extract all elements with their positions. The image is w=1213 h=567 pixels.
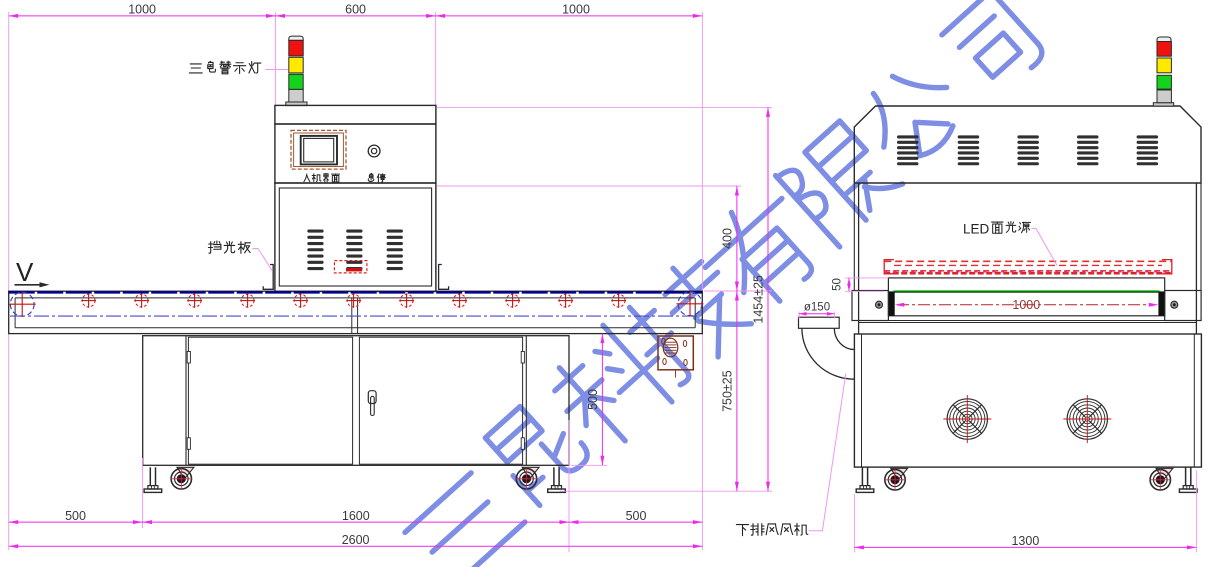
svg-text:1300: 1300: [1011, 534, 1039, 548]
svg-text:400: 400: [720, 228, 734, 249]
svg-text:2600: 2600: [342, 533, 370, 547]
svg-text:50: 50: [832, 278, 844, 291]
svg-text:1454±25: 1454±25: [752, 275, 766, 324]
svg-text:500: 500: [586, 389, 600, 410]
svg-text:1000: 1000: [128, 3, 156, 17]
svg-text:1600: 1600: [342, 509, 370, 523]
svg-text:ø150: ø150: [804, 302, 830, 314]
svg-text:500: 500: [65, 509, 86, 523]
svg-text:1000: 1000: [1012, 298, 1040, 312]
svg-text:LED: LED: [963, 222, 990, 237]
svg-text:1000: 1000: [562, 3, 590, 17]
svg-text:500: 500: [626, 509, 647, 523]
svg-text:750±25: 750±25: [720, 370, 734, 412]
svg-text:600: 600: [345, 3, 366, 17]
svg-text:V: V: [16, 257, 34, 287]
